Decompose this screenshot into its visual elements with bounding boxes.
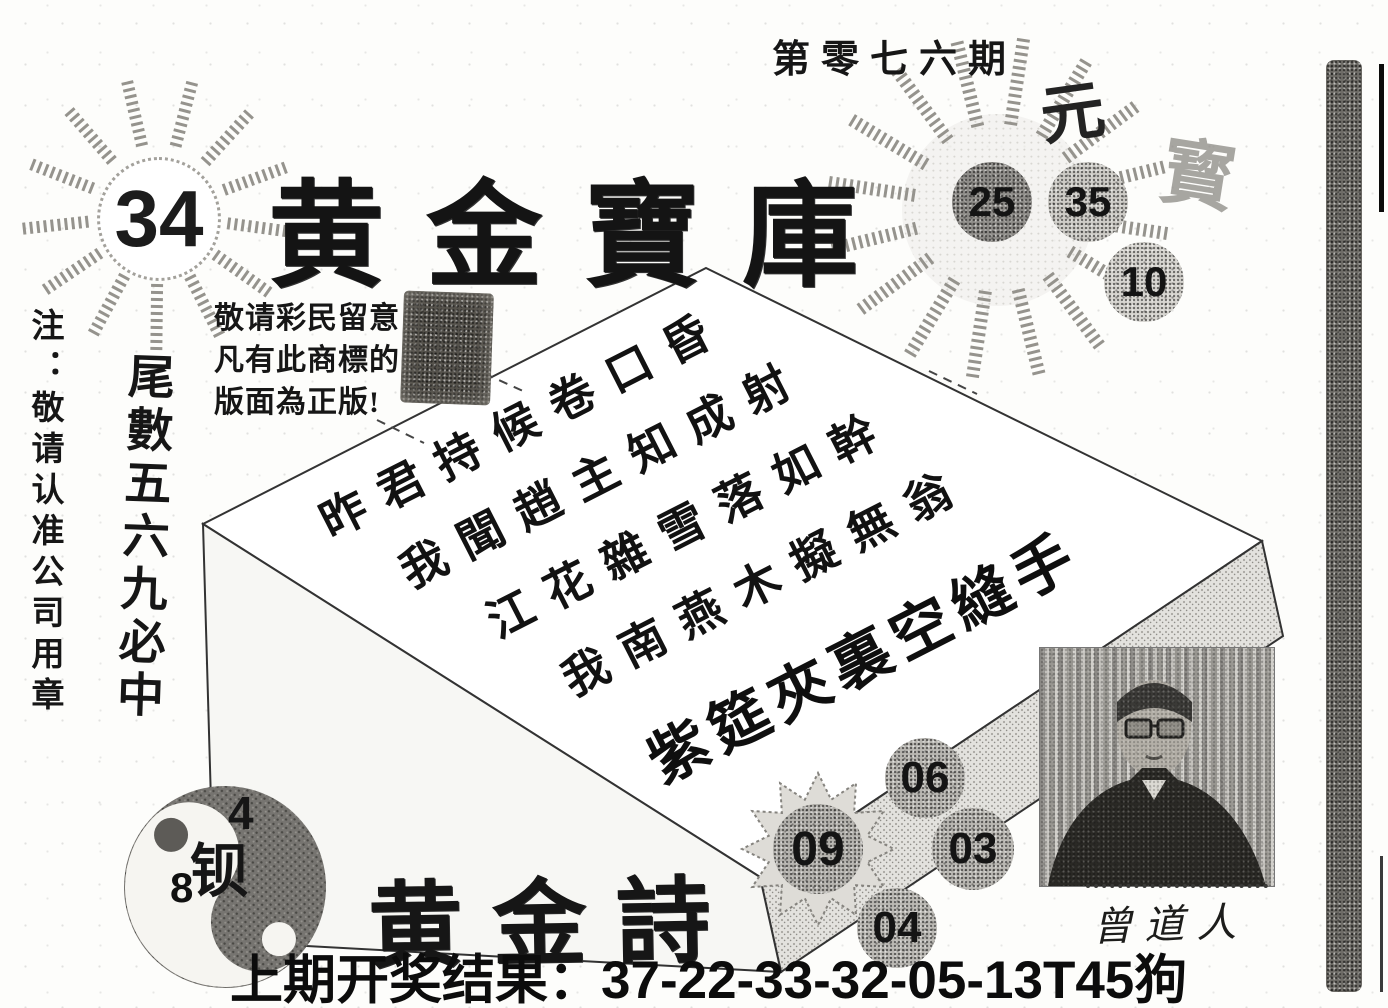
last-draw-result: 上期开奖结果：37-22-33-32-05-13T45狗 <box>230 938 1187 1008</box>
calligraphy-yuan: 元 <box>1034 58 1110 158</box>
pick-ball-06: 06 <box>885 738 965 818</box>
pick-ball-03: 03 <box>932 808 1014 890</box>
lucky-number-circle: 34 <box>97 157 221 281</box>
issue-label: 第零七六期 <box>772 28 1017 83</box>
tail-slogan: 尾數五六九必中 <box>99 351 182 753</box>
lucky-number: 34 <box>115 173 204 265</box>
sun-ball-35: 35 <box>1048 162 1128 242</box>
page-title: 黄金寶庫 <box>268 142 900 310</box>
page: 第零七六期 34 黄金寶庫 元 寳 25 35 10 敬请彩民留意 凡有此商標的… <box>0 0 1388 1008</box>
sun-ball-25: 25 <box>952 162 1032 242</box>
trademark-notice: 敬请彩民留意 凡有此商標的 版面為正版! <box>214 298 400 424</box>
taiji-center-char: 钡 <box>190 824 248 908</box>
pick-ball-09: 09 <box>773 804 863 894</box>
sun-ball-10: 10 <box>1104 242 1184 322</box>
trademark-stamp-image <box>400 290 494 405</box>
right-ink-bar <box>1326 60 1362 992</box>
dotted-rule <box>1086 884 1268 888</box>
side-note-vertical: 注：敬请认准公司用章 <box>20 308 68 788</box>
photo-grain-overlay <box>1040 648 1274 886</box>
portrait-photo <box>1040 648 1274 886</box>
trademark-notice-line: 敬请彩民留意 <box>214 298 400 340</box>
trademark-notice-line: 凡有此商標的 <box>214 340 400 382</box>
trademark-notice-line: 版面為正版! <box>214 382 400 424</box>
